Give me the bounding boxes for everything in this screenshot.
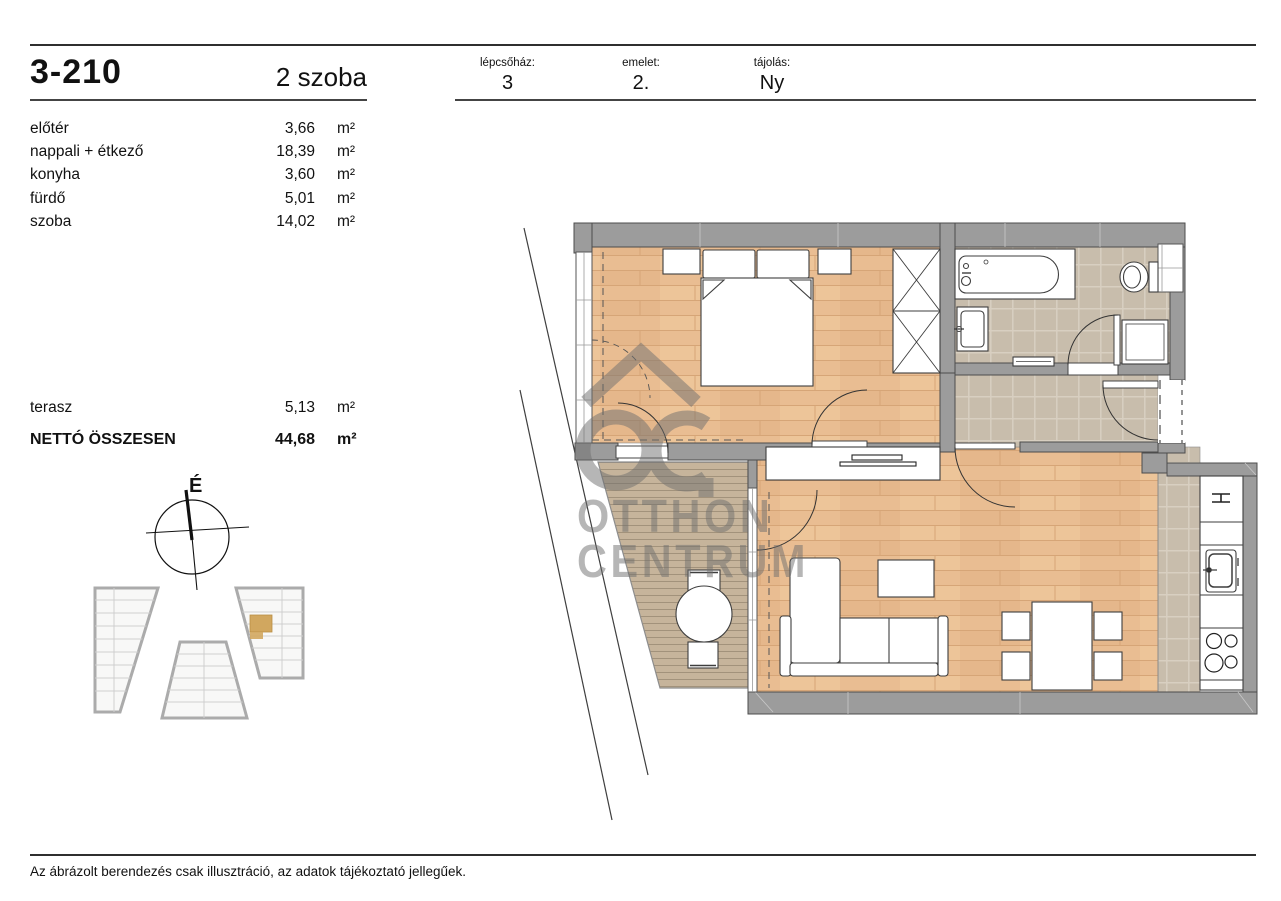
- dining-chair: [1002, 612, 1030, 640]
- compass-north-label: É: [189, 474, 202, 497]
- bed: [701, 250, 813, 386]
- entrance-opening: [1158, 380, 1185, 443]
- kitchen-furniture: [1200, 476, 1243, 690]
- terrace-table: [676, 586, 732, 642]
- floorplan-sheet: 3-210 2 szoba lépcsőház: 3 emelet: 2. tá…: [0, 0, 1281, 901]
- compass: É: [146, 474, 249, 590]
- site-plan: [95, 588, 303, 718]
- kitchen-floor: [1158, 447, 1200, 692]
- compass-needle: [186, 490, 192, 540]
- site-building-left: [95, 588, 158, 712]
- nightstand-left: [663, 249, 700, 274]
- dining-chair: [1094, 652, 1122, 680]
- site-building-center: [162, 642, 248, 718]
- nightstand-right: [818, 249, 851, 274]
- bathroom-window-recess: [1158, 244, 1183, 292]
- floorplan-drawing: OTTHON CENTRUM É: [0, 0, 1281, 901]
- coffee-table: [878, 560, 934, 597]
- bathtub: [955, 249, 1075, 299]
- facade-window: [576, 252, 592, 443]
- bath-mat: [1013, 357, 1054, 366]
- bathroom-sink: [954, 307, 988, 351]
- washing-machine: [1122, 320, 1168, 364]
- toilet: [1120, 262, 1158, 292]
- watermark-line1: OTTHON: [577, 491, 773, 543]
- bedroom-furniture: [663, 249, 940, 386]
- site-building-right: [236, 588, 303, 678]
- kitchen-sink: [1203, 550, 1238, 592]
- terrace-chair: [688, 642, 718, 668]
- dining-chair: [1002, 652, 1030, 680]
- dining-chair: [1094, 612, 1122, 640]
- watermark-line2: CENTRUM: [577, 536, 809, 588]
- wardrobe: [893, 249, 940, 373]
- dining-table: [1032, 602, 1092, 690]
